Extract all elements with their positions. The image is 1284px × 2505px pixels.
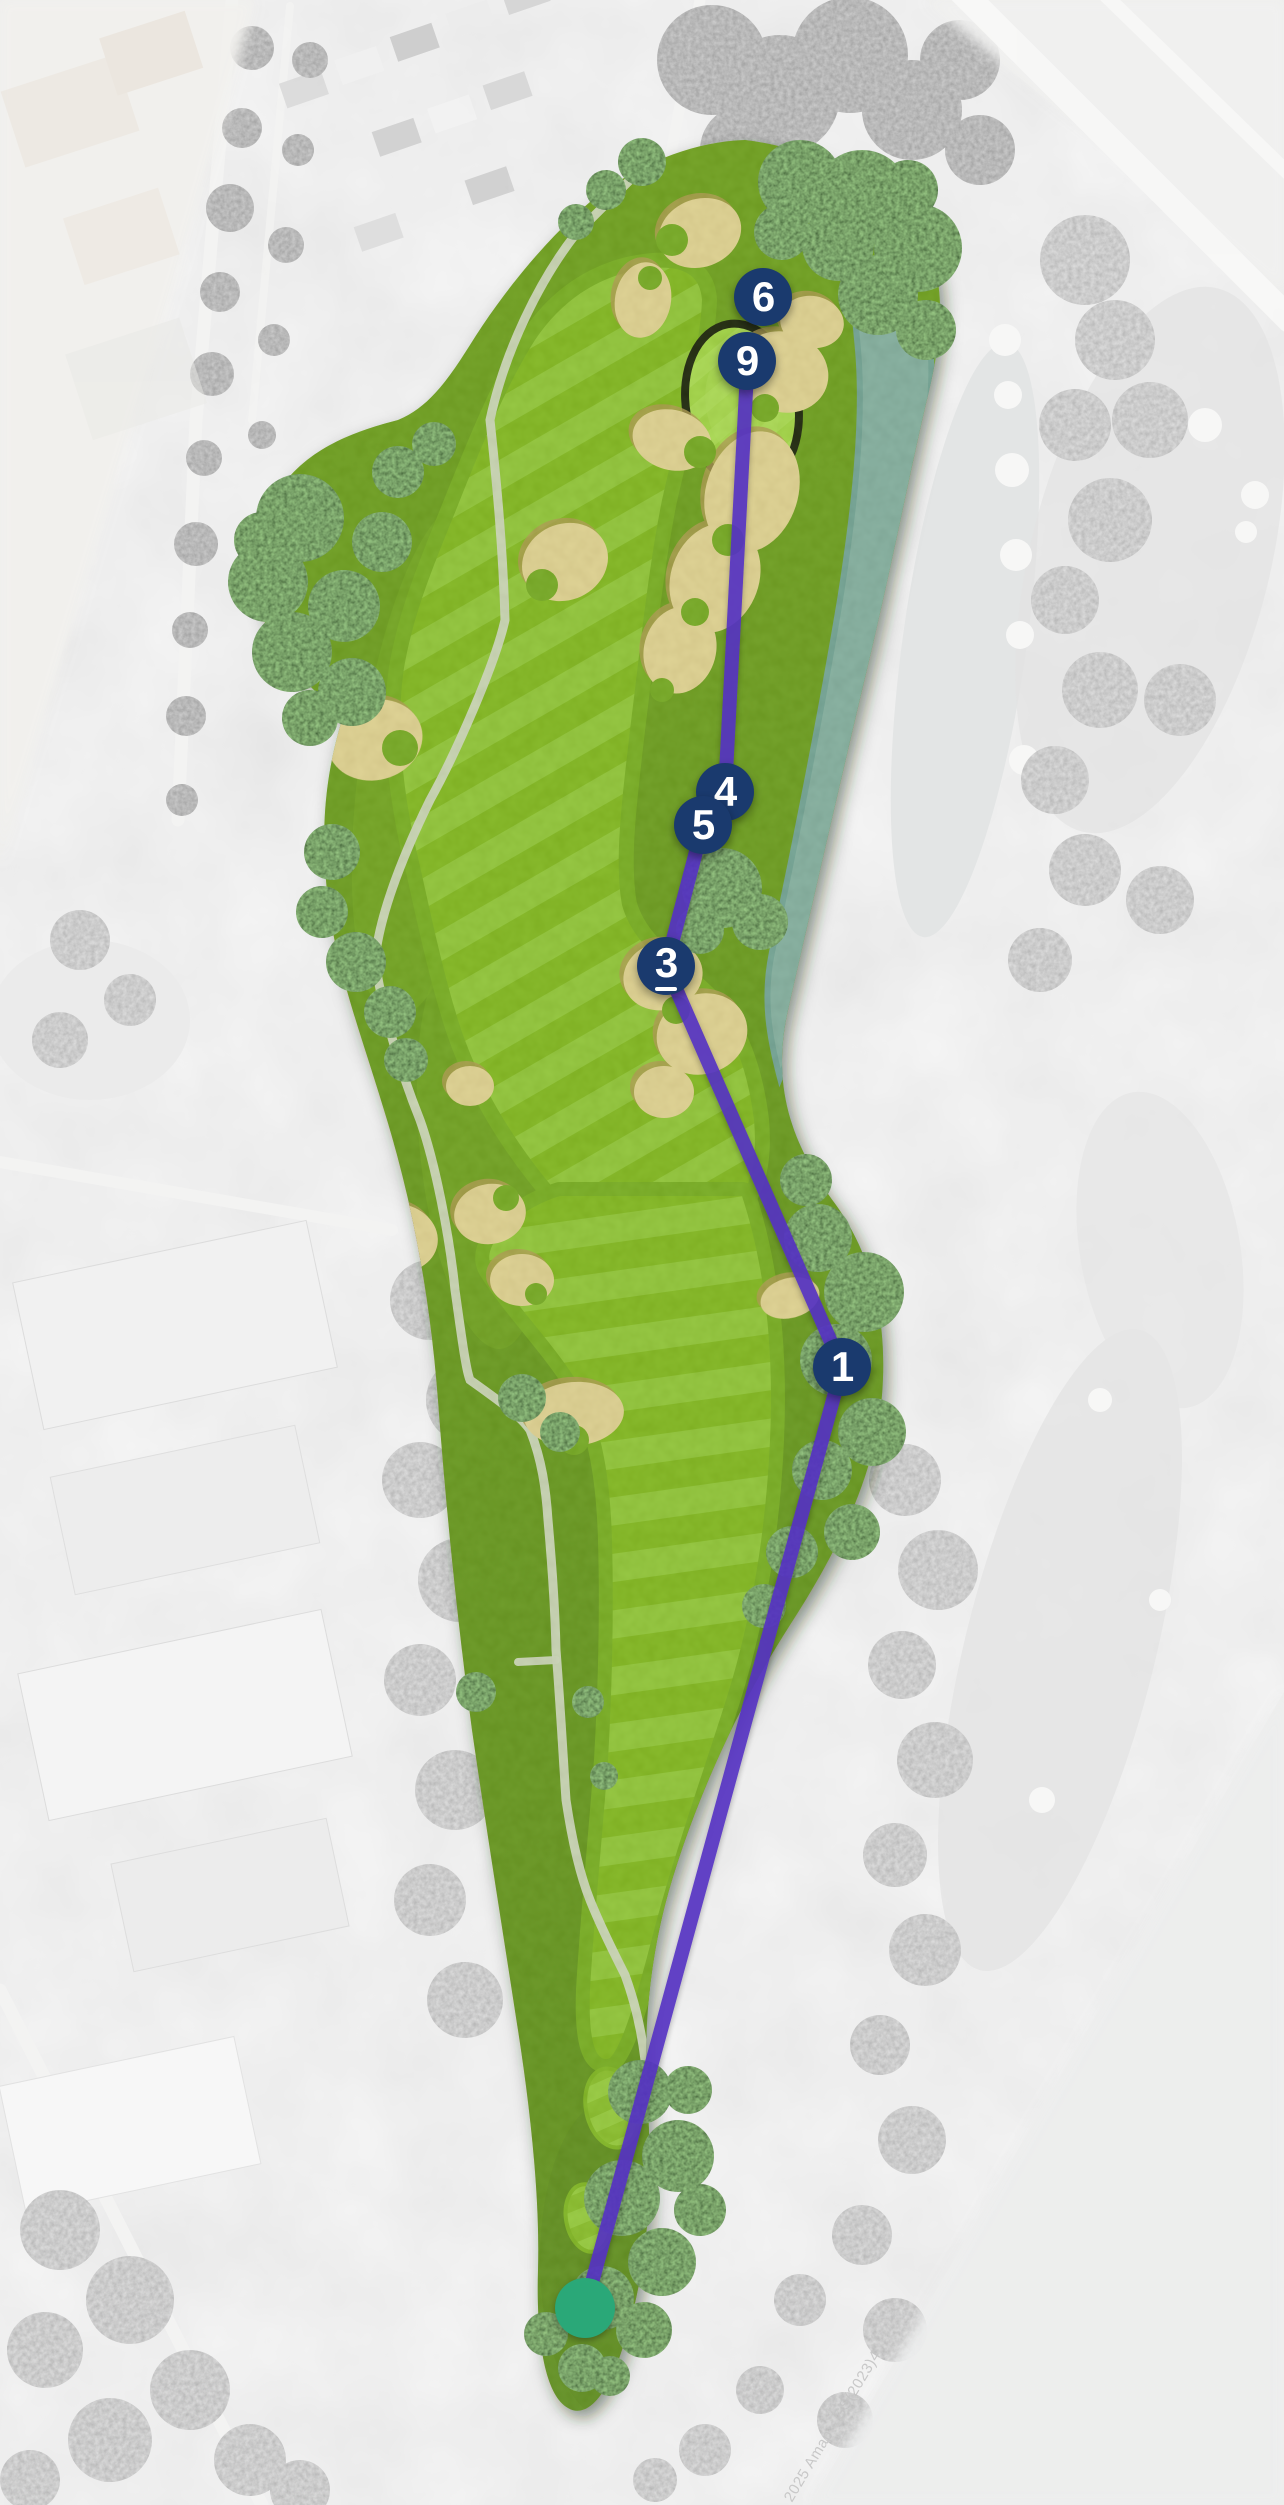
shot-marker-9[interactable]: 9 — [718, 332, 776, 390]
shot-marker-number: 1 — [831, 1346, 853, 1388]
shot-marker-number: 9 — [736, 340, 758, 382]
shot-marker-1[interactable]: 1 — [813, 1338, 871, 1396]
hole-illustration — [0, 0, 1284, 2505]
shot-marker-number: 6 — [752, 276, 774, 318]
shot-marker-3[interactable]: 3 — [637, 937, 695, 995]
shot-marker-5[interactable]: 5 — [674, 796, 732, 854]
marker-underline — [655, 987, 677, 991]
shot-marker-6[interactable]: 6 — [734, 268, 792, 326]
hole-map: 134569 2025 Amap - GS(2023)4 — [0, 0, 1284, 2505]
tee-marker[interactable] — [555, 2278, 615, 2338]
shot-marker-number: 3 — [655, 942, 677, 984]
shot-marker-number: 5 — [692, 804, 714, 846]
